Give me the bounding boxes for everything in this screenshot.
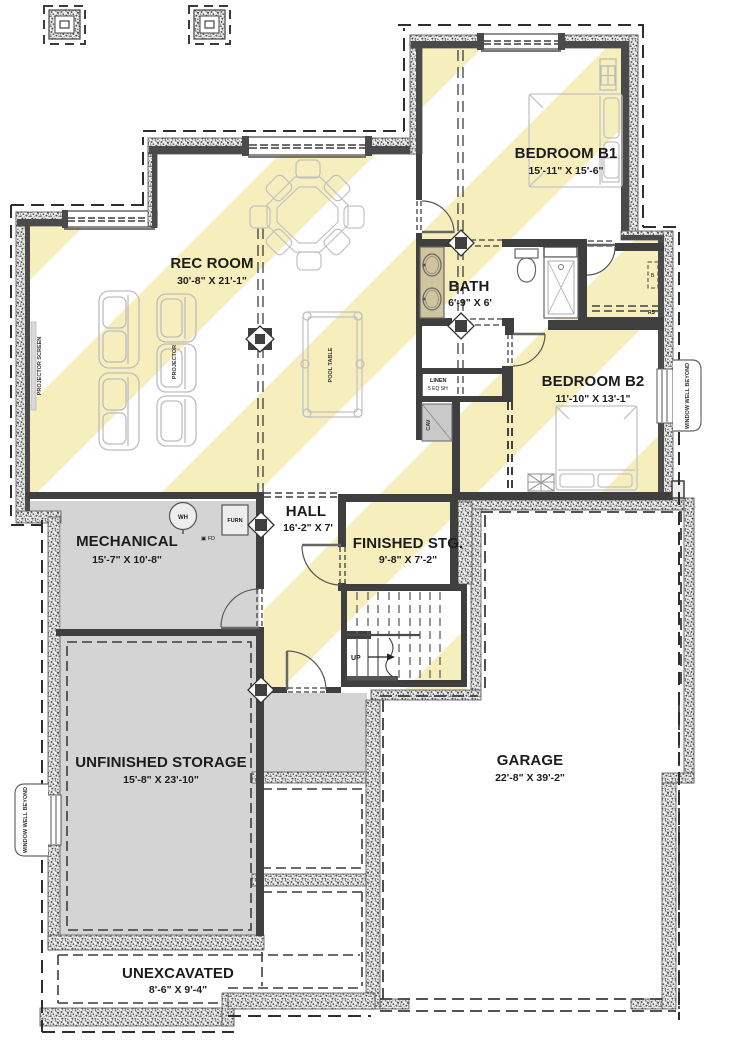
svg-text:11'-10" X 13'-1": 11'-10" X 13'-1" [555, 393, 630, 405]
svg-text:30'-8" X 21'-1": 30'-8" X 21'-1" [177, 275, 247, 287]
svg-text:LINEN: LINEN [430, 378, 447, 384]
svg-text:▣ FD: ▣ FD [201, 536, 215, 542]
svg-text:UNEXCAVATED: UNEXCAVATED [122, 965, 234, 982]
svg-text:GARAGE: GARAGE [497, 752, 563, 769]
svg-text:15'-7" X 10'-8": 15'-7" X 10'-8" [92, 554, 162, 566]
svg-text:BEDROOM B1: BEDROOM B1 [515, 145, 618, 162]
svg-text:9'-8" X 7'-2": 9'-8" X 7'-2" [379, 554, 437, 566]
svg-text:6'-9" X 6': 6'-9" X 6' [448, 297, 492, 309]
svg-text:15'-11" X 15'-6": 15'-11" X 15'-6" [528, 165, 603, 177]
svg-text:WH: WH [178, 515, 188, 521]
svg-text:8'-6" X 9'-4": 8'-6" X 9'-4" [149, 984, 207, 996]
svg-text:5 EQ SH: 5 EQ SH [428, 386, 448, 392]
svg-text:16'-2" X 7': 16'-2" X 7' [283, 522, 333, 534]
svg-text:POOL TABLE: POOL TABLE [328, 347, 334, 382]
svg-text:REC ROOM: REC ROOM [170, 255, 253, 272]
svg-text:RS: RS [648, 310, 656, 316]
svg-text:BATH: BATH [449, 278, 490, 295]
svg-text:FURN: FURN [227, 518, 242, 524]
svg-text:15'-8" X 23'-10": 15'-8" X 23'-10" [123, 774, 199, 786]
svg-text:PROJECTOR: PROJECTOR [172, 345, 178, 379]
svg-text:MECHANICAL: MECHANICAL [76, 533, 178, 550]
svg-text:UP: UP [351, 655, 361, 662]
svg-text:WINDOW WELL BEYOND: WINDOW WELL BEYOND [23, 787, 29, 853]
svg-text:PROJECTOR SCREEN: PROJECTOR SCREEN [37, 337, 43, 396]
svg-text:UNFINISHED STORAGE: UNFINISHED STORAGE [75, 754, 247, 771]
svg-text:FINISHED STG.: FINISHED STG. [353, 535, 463, 552]
svg-text:WINDOW WELL BEYOND: WINDOW WELL BEYOND [685, 363, 691, 429]
svg-text:HALL: HALL [286, 503, 326, 520]
svg-text:BEDROOM B2: BEDROOM B2 [542, 373, 645, 390]
svg-text:CAV: CAV [426, 419, 432, 431]
svg-text:22'-8" X 39'-2": 22'-8" X 39'-2" [495, 772, 565, 784]
